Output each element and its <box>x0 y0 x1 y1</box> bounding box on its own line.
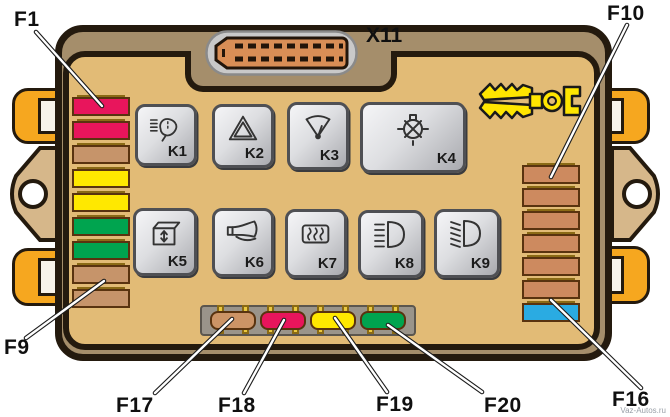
fuse-puller-tweezers-icon <box>476 79 594 128</box>
multi-pin-connector-icon <box>205 30 358 81</box>
relay-label: K9 <box>471 255 490 272</box>
fuse <box>72 190 130 214</box>
fuse-row-bottom <box>200 305 416 336</box>
callout-f17: F17 <box>116 394 154 417</box>
relay-k3: K3 <box>287 102 349 170</box>
relay-label: K2 <box>245 145 264 162</box>
fuse <box>72 262 130 286</box>
low-beam-icon <box>447 217 487 250</box>
horn-icon <box>224 216 262 246</box>
relay-label: K8 <box>395 255 414 272</box>
callout-f19: F19 <box>376 393 414 417</box>
fuse <box>72 166 130 190</box>
callout-f18: F18 <box>218 394 256 417</box>
callout-f20: F20 <box>484 394 522 417</box>
fuse <box>72 286 130 310</box>
mounting-tab-icon <box>612 146 664 247</box>
fuse <box>72 238 130 262</box>
fuse <box>210 311 256 330</box>
headlamp-washer-icon <box>148 112 184 146</box>
relay-k5: K5 <box>133 208 197 276</box>
relay-label: K5 <box>168 253 187 270</box>
connector-label: X11 <box>366 24 402 48</box>
fuse <box>72 142 130 166</box>
relay-label: K4 <box>437 150 456 167</box>
hazard-warning-icon <box>226 112 260 144</box>
relay-k9: K9 <box>434 209 500 278</box>
fuse <box>260 311 306 330</box>
relay-k8: K8 <box>358 210 424 278</box>
relay-k1: K1 <box>135 104 197 166</box>
relay-k2: K2 <box>212 104 274 168</box>
callout-f9: F9 <box>4 336 30 360</box>
relay-k4: K4 <box>360 102 466 173</box>
fuse <box>522 231 580 254</box>
relay-label: K1 <box>168 143 187 160</box>
fuse-box-diagram: X11 K1 <box>0 0 670 417</box>
windshield-wiper-icon <box>299 110 337 142</box>
relay-label: K3 <box>320 147 339 164</box>
callout-f10: F10 <box>607 2 645 26</box>
fuse <box>310 311 356 330</box>
fuse-column-right <box>522 162 580 323</box>
heated-rear-window-icon <box>297 217 335 249</box>
fuse <box>522 162 580 185</box>
fuse <box>522 254 580 277</box>
fuse <box>72 214 130 238</box>
relay-label: K6 <box>245 254 264 271</box>
callout-f1: F1 <box>14 8 40 32</box>
fuse <box>72 118 130 142</box>
relay-label: K7 <box>318 255 337 272</box>
fuse <box>522 277 580 300</box>
fuse <box>522 185 580 208</box>
relay-k6: K6 <box>212 208 274 277</box>
mounting-tab-icon <box>6 146 58 247</box>
power-window-icon <box>146 216 184 250</box>
lamp-check-icon <box>391 110 435 148</box>
fuse <box>360 311 406 330</box>
watermark: Vaz-Autos.ru <box>620 406 666 415</box>
high-beam-icon <box>371 218 411 251</box>
fuse <box>522 208 580 231</box>
fuse <box>72 94 130 118</box>
fuse <box>522 300 580 323</box>
relay-k7: K7 <box>285 209 347 278</box>
fuse-column-left <box>72 94 130 310</box>
